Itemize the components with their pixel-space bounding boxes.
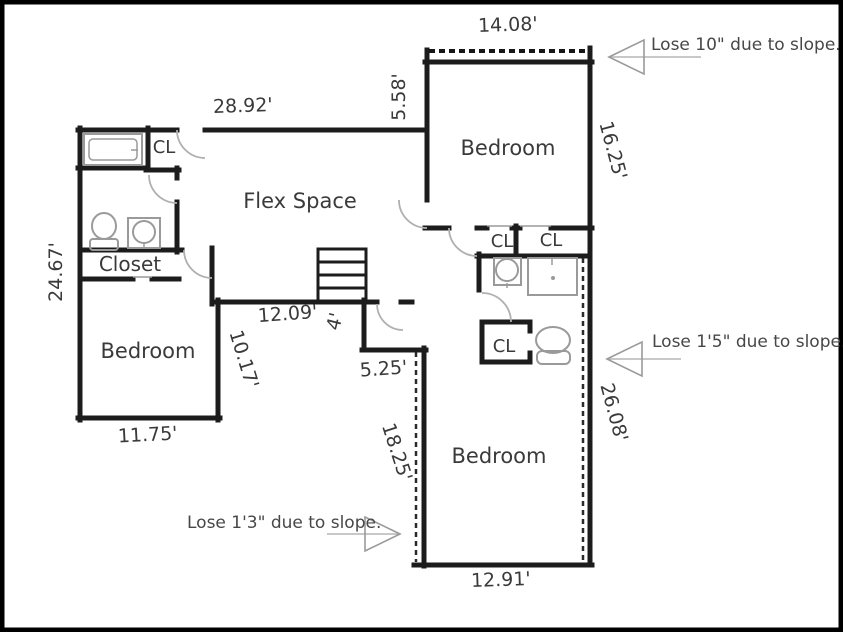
room-label-bedroom-left: Bedroom — [101, 339, 196, 363]
dim-under-stairs-width: 12.09' — [257, 301, 318, 327]
toilet-left-bath — [90, 213, 118, 250]
vanity-right-bath — [528, 258, 577, 295]
room-label-flex-space: Flex Space — [243, 189, 357, 213]
pedestal-sink — [536, 327, 570, 364]
slope-note-right: Lose 1'5" due to slope. — [652, 332, 843, 352]
bathtub — [84, 134, 142, 165]
toilet-right-bath — [494, 258, 521, 288]
slope-note-top: Lose 10" due to slope. — [651, 35, 841, 55]
closet-label-cl-bottom: CL — [493, 336, 516, 357]
dim-left-bedroom-width: 11.75' — [117, 422, 178, 447]
dim-top-bedroom-left-height: 5.58' — [388, 73, 410, 121]
stairs — [318, 249, 366, 301]
sink-left-bath — [128, 218, 160, 249]
slope-annotation-top: Lose 10" due to slope. — [609, 35, 841, 74]
dim-bottom-bedroom-right-height: 26.08' — [595, 381, 632, 444]
slope-annotation-bottom: Lose 1'3" due to slope. — [187, 513, 400, 551]
closet-label-cl-hall-1: CL — [491, 231, 514, 252]
dim-top-bedroom-right-height: 16.25' — [594, 119, 631, 182]
slope-annotation-right: Lose 1'5" due to slope. — [607, 332, 843, 376]
room-label-closet: Closet — [99, 252, 161, 276]
room-label-bedroom-top: Bedroom — [461, 136, 556, 160]
dim-hall-bottom-width: 5.25' — [359, 356, 408, 381]
closet-opening-lines — [133, 226, 551, 277]
dim-top-bedroom-width: 14.08' — [478, 13, 538, 37]
closet-label-cl-top-left: CL — [153, 137, 176, 158]
dim-flex-top-width: 28.92' — [213, 94, 273, 118]
dim-bottom-bedroom-left-height: 18.25' — [377, 420, 416, 484]
room-label-bedroom-bottom: Bedroom — [452, 444, 547, 468]
slope-note-bottom: Lose 1'3" due to slope. — [187, 513, 381, 533]
interior-walls — [78, 48, 592, 566]
dim-hall-step-depth: 4' — [322, 310, 348, 332]
dim-bottom-bedroom-width: 12.91' — [471, 568, 531, 592]
floor-plan-image: Flex Space Bedroom Bedroom Bedroom Close… — [0, 0, 843, 632]
dim-left-bedroom-right-height: 10.17' — [225, 328, 263, 391]
floor-plan-svg: Flex Space Bedroom Bedroom Bedroom Close… — [0, 0, 843, 632]
closet-label-cl-hall-2: CL — [540, 230, 563, 251]
dim-left-wall-height: 24.67' — [45, 242, 67, 302]
slope-hatched-walls — [416, 51, 589, 562]
